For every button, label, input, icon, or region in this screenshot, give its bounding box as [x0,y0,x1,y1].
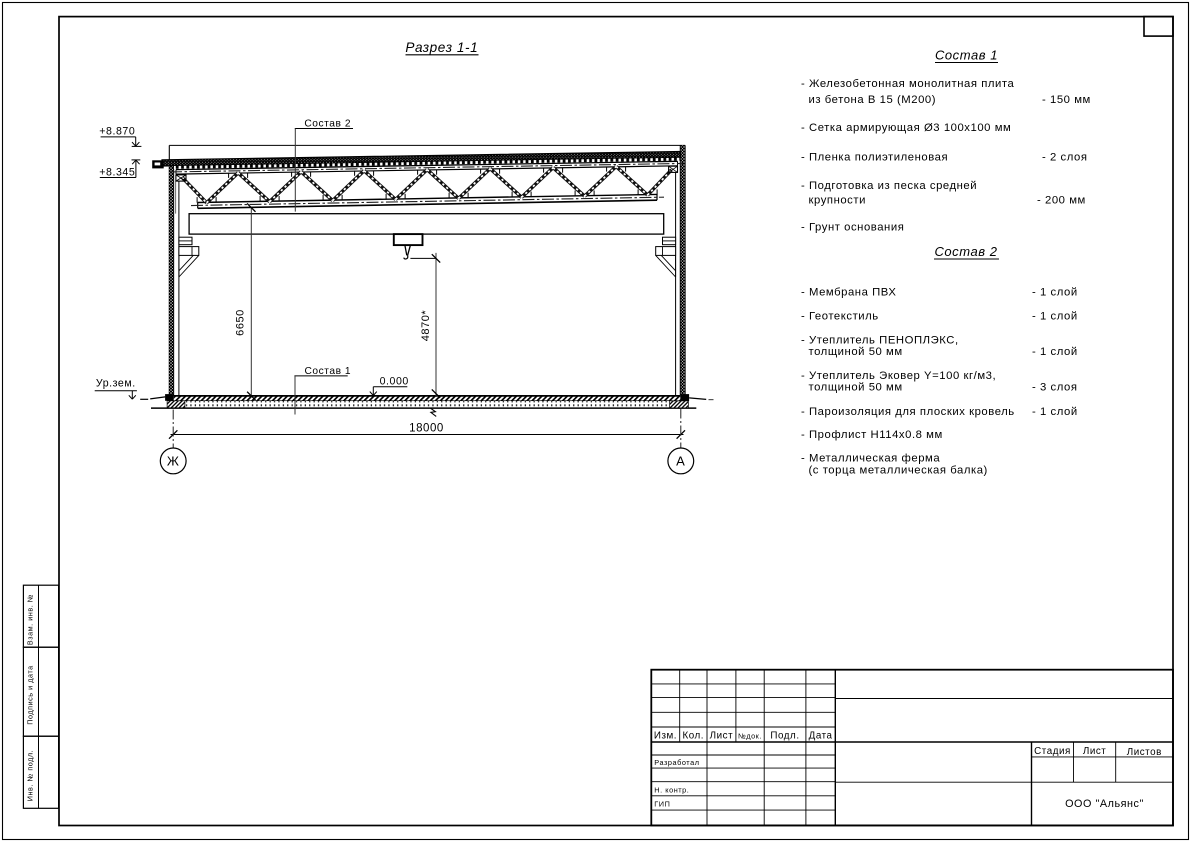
svg-text:Н. контр.: Н. контр. [654,786,689,795]
svg-text:Стадия: Стадия [1034,746,1071,757]
svg-text:Разрез 1-1: Разрез 1-1 [405,40,478,55]
svg-text:Лист: Лист [1083,746,1107,757]
svg-text:- 1 слой: - 1 слой [1032,346,1078,358]
svg-text:Состав 1: Состав 1 [935,48,998,63]
svg-text:- Пленка полиэтиленовая: - Пленка полиэтиленовая [801,152,948,164]
svg-text:Кол.: Кол. [683,731,705,742]
svg-text:- Утеплитель ПЕНОПЛЭКС,: - Утеплитель ПЕНОПЛЭКС, [801,334,959,346]
svg-text:Взам. инв. №: Взам. инв. № [26,594,35,645]
svg-text:- Железобетонная монолитная п: - Железобетонная монолитная плита [801,78,1015,90]
svg-text:Подл.: Подл. [770,731,799,742]
svg-text:- 150 мм: - 150 мм [1042,94,1091,106]
svg-text:- 200 мм: - 200 мм [1037,195,1086,207]
svg-text:- 2 слоя: - 2 слоя [1042,152,1088,164]
svg-text:А: А [676,454,685,469]
svg-text:Изм.: Изм. [654,731,677,742]
svg-text:- Профлист Н114х0.8 мм: - Профлист Н114х0.8 мм [801,429,943,441]
svg-text:Состав 1: Состав 1 [305,366,352,377]
svg-text:4870*: 4870* [420,310,432,342]
svg-text:- Утеплитель Эковер Y=100 кг/м: - Утеплитель Эковер Y=100 кг/м3, [801,370,996,382]
svg-text:Разработал: Разработал [654,758,699,767]
svg-text:+8.345: +8.345 [99,167,135,179]
svg-text:- Подготовка из песка средней: - Подготовка из песка средней [801,180,977,192]
svg-text:- 1 слой: - 1 слой [1032,286,1078,298]
svg-text:- Мембрана ПВХ: - Мембрана ПВХ [801,286,896,298]
svg-text:- Пароизоляция для плоских кро: - Пароизоляция для плоских кровель [801,406,1015,418]
svg-text:18000: 18000 [409,423,444,435]
svg-text:Подпись и дата: Подпись и дата [26,665,35,724]
svg-text:толщиной 50 мм: толщиной 50 мм [809,382,903,394]
svg-text:ООО "Альянс": ООО "Альянс" [1065,798,1144,810]
svg-text:- 1 слой: - 1 слой [1032,311,1078,323]
svg-text:- Металлическая ферма: - Металлическая ферма [801,452,940,464]
svg-text:№док.: №док. [738,731,762,740]
svg-text:из бетона В 15 (М200): из бетона В 15 (М200) [809,94,937,106]
svg-text:Ур.зем.: Ур.зем. [96,378,136,390]
svg-text:ГИП: ГИП [654,800,670,809]
svg-text:- Грунт основания: - Грунт основания [801,221,904,233]
svg-text:крупности: крупности [809,195,866,207]
svg-text:6650: 6650 [235,309,247,336]
svg-text:0.000: 0.000 [380,375,409,387]
svg-text:Состав 2: Состав 2 [304,118,351,129]
svg-text:- Сетка армирующая Ø3 100х100: - Сетка армирующая Ø3 100х100 мм [801,122,1011,134]
svg-text:Состав 2: Состав 2 [934,244,997,259]
svg-text:толщиной 50 мм: толщиной 50 мм [809,346,903,358]
svg-text:(с торца металлическая балка): (с торца металлическая балка) [809,464,988,476]
svg-text:Ж: Ж [167,454,180,469]
svg-text:Листов: Листов [1127,747,1162,758]
svg-text:Лист: Лист [710,731,734,742]
svg-text:Дата: Дата [809,731,833,742]
svg-text:- 1 слой: - 1 слой [1032,406,1078,418]
svg-text:Инв. № подл.: Инв. № подл. [26,750,35,801]
svg-text:- 3 слоя: - 3 слоя [1032,382,1078,394]
svg-text:+8.870: +8.870 [99,125,135,137]
svg-text:- Геотекстиль: - Геотекстиль [801,311,879,323]
